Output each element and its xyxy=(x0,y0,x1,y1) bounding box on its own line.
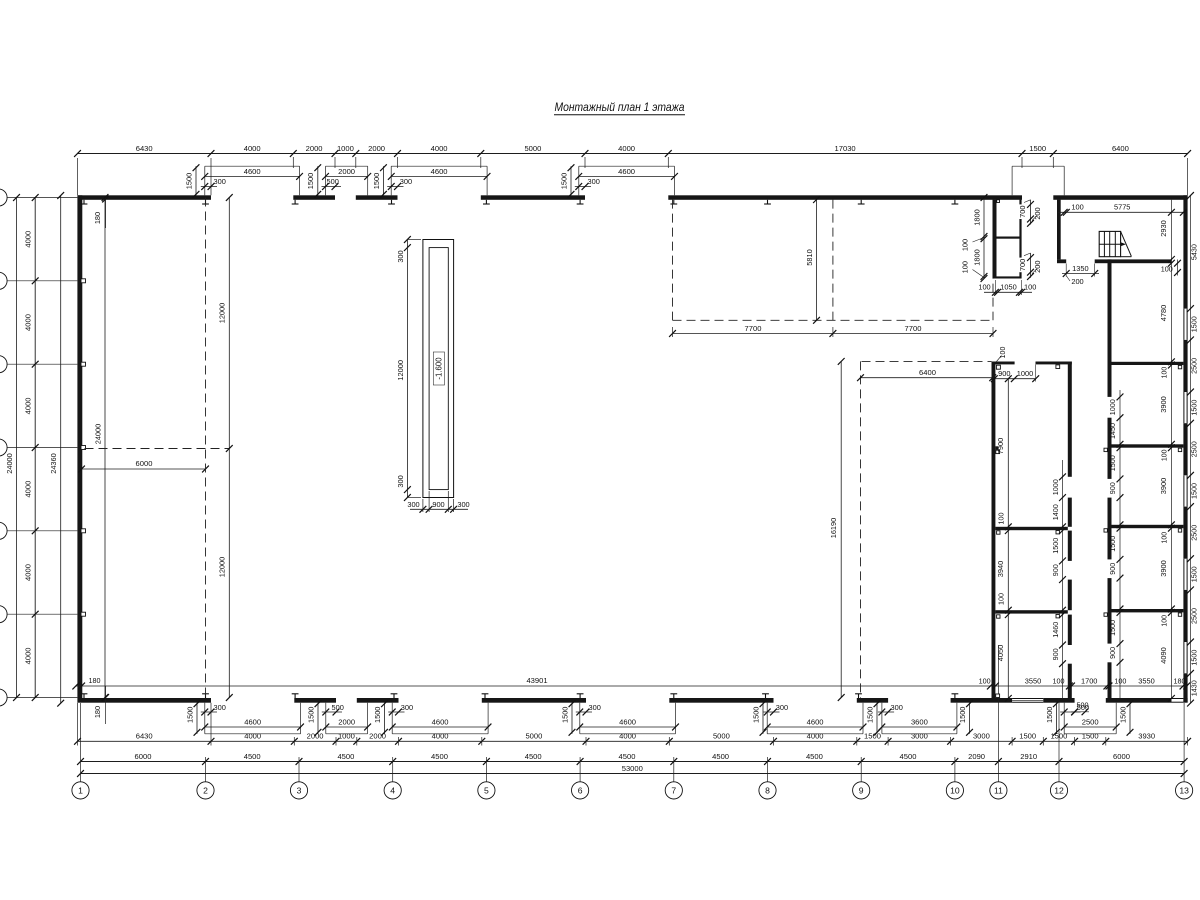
svg-text:4000: 4000 xyxy=(807,732,824,741)
svg-text:180: 180 xyxy=(89,676,101,685)
svg-text:300: 300 xyxy=(396,250,405,262)
svg-text:12000: 12000 xyxy=(218,303,227,324)
svg-text:4000: 4000 xyxy=(244,732,261,741)
svg-text:300: 300 xyxy=(891,703,903,712)
svg-text:17030: 17030 xyxy=(835,144,856,153)
svg-text:4000: 4000 xyxy=(24,481,33,498)
svg-text:1000: 1000 xyxy=(337,144,354,153)
svg-text:4500: 4500 xyxy=(244,752,261,761)
svg-text:300: 300 xyxy=(457,500,469,509)
svg-text:1500: 1500 xyxy=(373,707,382,723)
svg-text:4600: 4600 xyxy=(244,167,261,176)
svg-text:1500: 1500 xyxy=(958,707,967,723)
svg-text:1500: 1500 xyxy=(1118,707,1127,723)
svg-text:1430: 1430 xyxy=(1190,680,1199,696)
svg-text:3900: 3900 xyxy=(1159,396,1168,412)
svg-text:100: 100 xyxy=(1161,615,1168,627)
svg-text:2000: 2000 xyxy=(338,167,355,176)
svg-text:300: 300 xyxy=(407,500,419,509)
svg-text:2500: 2500 xyxy=(1082,718,1099,727)
svg-text:4000: 4000 xyxy=(431,144,448,153)
svg-text:6430: 6430 xyxy=(136,732,153,741)
svg-text:5000: 5000 xyxy=(524,144,541,153)
svg-text:4500: 4500 xyxy=(525,752,542,761)
svg-text:3600: 3600 xyxy=(911,718,928,727)
svg-text:4780: 4780 xyxy=(1159,305,1168,321)
svg-text:3940: 3940 xyxy=(996,561,1005,577)
svg-text:1500: 1500 xyxy=(560,707,569,723)
svg-text:300: 300 xyxy=(776,703,788,712)
svg-text:100: 100 xyxy=(1161,449,1168,461)
svg-text:1500: 1500 xyxy=(1108,536,1117,552)
svg-text:4600: 4600 xyxy=(431,167,448,176)
svg-text:4600: 4600 xyxy=(807,718,824,727)
svg-text:1500: 1500 xyxy=(865,707,874,723)
svg-text:4000: 4000 xyxy=(24,647,33,664)
svg-text:1500: 1500 xyxy=(1029,144,1046,153)
svg-text:4: 4 xyxy=(390,785,395,795)
svg-text:900: 900 xyxy=(1108,647,1117,659)
svg-text:500: 500 xyxy=(1077,700,1089,709)
svg-text:4090: 4090 xyxy=(1159,647,1168,663)
svg-text:3930: 3930 xyxy=(1138,732,1155,741)
svg-text:100: 100 xyxy=(979,676,991,685)
svg-text:4000: 4000 xyxy=(432,732,449,741)
svg-text:1000: 1000 xyxy=(338,732,355,741)
svg-text:8: 8 xyxy=(765,785,770,795)
svg-text:1000: 1000 xyxy=(1108,399,1117,415)
svg-text:1800: 1800 xyxy=(972,209,981,225)
svg-text:3: 3 xyxy=(297,785,302,795)
svg-text:16190: 16190 xyxy=(829,518,838,539)
svg-text:300: 300 xyxy=(396,475,405,487)
svg-text:900: 900 xyxy=(998,369,1010,378)
svg-text:1500: 1500 xyxy=(1190,650,1199,666)
svg-text:5: 5 xyxy=(484,785,489,795)
svg-text:900: 900 xyxy=(432,500,444,509)
svg-text:24360: 24360 xyxy=(49,453,58,474)
svg-text:1700: 1700 xyxy=(1081,676,1097,685)
svg-text:4000: 4000 xyxy=(618,144,635,153)
svg-text:300: 300 xyxy=(214,703,226,712)
svg-text:4050: 4050 xyxy=(996,645,1005,661)
svg-text:1500: 1500 xyxy=(1082,732,1099,741)
svg-text:900: 900 xyxy=(1051,648,1060,660)
svg-text:2930: 2930 xyxy=(1159,220,1168,236)
svg-text:2000: 2000 xyxy=(306,144,323,153)
svg-text:2000: 2000 xyxy=(369,732,386,741)
svg-text:7: 7 xyxy=(671,785,676,795)
svg-text:5775: 5775 xyxy=(1114,203,1130,212)
svg-text:7700: 7700 xyxy=(905,324,922,333)
svg-text:900: 900 xyxy=(1051,564,1060,576)
svg-text:2910: 2910 xyxy=(1020,752,1037,761)
svg-text:6400: 6400 xyxy=(919,368,936,377)
svg-text:2500: 2500 xyxy=(1190,441,1199,457)
svg-text:2500: 2500 xyxy=(1190,608,1199,624)
svg-text:4500: 4500 xyxy=(619,752,636,761)
svg-text:1500: 1500 xyxy=(1045,707,1054,723)
svg-text:1800: 1800 xyxy=(972,249,981,265)
svg-text:12000: 12000 xyxy=(396,360,405,381)
svg-text:3000: 3000 xyxy=(911,732,928,741)
svg-text:1400: 1400 xyxy=(1051,504,1060,520)
svg-text:2000: 2000 xyxy=(368,144,385,153)
svg-text:5000: 5000 xyxy=(525,732,542,741)
svg-text:100: 100 xyxy=(1053,676,1065,685)
svg-text:300: 300 xyxy=(400,177,412,186)
svg-text:1: 1 xyxy=(78,785,83,795)
svg-text:-1.600: -1.600 xyxy=(435,357,444,380)
svg-text:4600: 4600 xyxy=(619,718,636,727)
svg-text:500: 500 xyxy=(327,177,339,186)
svg-text:6000: 6000 xyxy=(136,459,153,468)
svg-text:7700: 7700 xyxy=(745,324,762,333)
svg-text:4500: 4500 xyxy=(431,752,448,761)
svg-text:1350: 1350 xyxy=(1072,264,1088,273)
svg-text:100: 100 xyxy=(1161,532,1168,544)
svg-text:1460: 1460 xyxy=(1051,622,1060,638)
svg-text:100: 100 xyxy=(1071,203,1083,212)
svg-text:24000: 24000 xyxy=(93,424,102,445)
svg-text:2000: 2000 xyxy=(307,732,324,741)
svg-text:100: 100 xyxy=(978,283,990,292)
svg-text:9: 9 xyxy=(859,785,864,795)
svg-text:300: 300 xyxy=(214,177,226,186)
svg-text:1500: 1500 xyxy=(864,732,881,741)
svg-text:4000: 4000 xyxy=(24,231,33,248)
svg-text:100: 100 xyxy=(1114,676,1126,685)
svg-text:6430: 6430 xyxy=(136,144,153,153)
svg-text:2: 2 xyxy=(203,785,208,795)
svg-text:1500: 1500 xyxy=(184,173,193,189)
svg-text:4600: 4600 xyxy=(618,167,635,176)
svg-text:3550: 3550 xyxy=(1025,676,1041,685)
svg-text:11: 11 xyxy=(994,785,1003,795)
svg-text:1500: 1500 xyxy=(372,173,381,189)
svg-text:10: 10 xyxy=(950,785,960,795)
svg-text:4500: 4500 xyxy=(806,752,823,761)
svg-text:13: 13 xyxy=(1179,785,1189,795)
svg-text:1500: 1500 xyxy=(1190,483,1199,499)
svg-text:1450: 1450 xyxy=(1108,423,1117,439)
svg-text:4500: 4500 xyxy=(337,752,354,761)
svg-text:1500: 1500 xyxy=(185,707,194,723)
svg-text:6400: 6400 xyxy=(1112,144,1129,153)
svg-text:4000: 4000 xyxy=(24,397,33,414)
svg-text:1500: 1500 xyxy=(1051,538,1060,554)
svg-text:1500: 1500 xyxy=(1190,566,1199,582)
svg-text:4000: 4000 xyxy=(244,144,261,153)
svg-text:2500: 2500 xyxy=(1190,525,1199,541)
svg-text:43901: 43901 xyxy=(526,676,547,685)
svg-text:6000: 6000 xyxy=(1113,752,1130,761)
svg-text:5000: 5000 xyxy=(713,732,730,741)
svg-text:900: 900 xyxy=(1108,563,1117,575)
svg-text:4600: 4600 xyxy=(244,718,261,727)
svg-text:1500: 1500 xyxy=(751,707,760,723)
svg-text:300: 300 xyxy=(588,177,600,186)
svg-text:900: 900 xyxy=(1108,482,1117,494)
svg-text:180: 180 xyxy=(1174,676,1186,685)
svg-text:2000: 2000 xyxy=(338,718,355,727)
svg-text:1500: 1500 xyxy=(306,173,315,189)
svg-text:1500: 1500 xyxy=(1108,455,1117,471)
svg-text:53000: 53000 xyxy=(622,764,643,773)
svg-text:3550: 3550 xyxy=(1138,676,1154,685)
svg-text:5810: 5810 xyxy=(805,249,814,265)
svg-text:7900: 7900 xyxy=(996,438,1005,454)
svg-text:12000: 12000 xyxy=(218,557,227,578)
svg-text:1500: 1500 xyxy=(1019,732,1036,741)
svg-text:100: 100 xyxy=(997,593,1006,605)
svg-text:100: 100 xyxy=(1161,367,1168,379)
svg-text:4600: 4600 xyxy=(432,718,449,727)
svg-text:1000: 1000 xyxy=(1017,369,1033,378)
svg-text:100: 100 xyxy=(1024,283,1036,292)
svg-text:180: 180 xyxy=(93,706,102,718)
svg-text:6: 6 xyxy=(578,785,583,795)
svg-text:Монтажный план 1 этажа: Монтажный план 1 этажа xyxy=(555,100,685,114)
svg-text:2090: 2090 xyxy=(968,752,985,761)
svg-text:6000: 6000 xyxy=(135,752,152,761)
svg-text:5430: 5430 xyxy=(1190,244,1199,260)
svg-text:100: 100 xyxy=(961,261,970,273)
svg-text:4500: 4500 xyxy=(900,752,917,761)
svg-text:100: 100 xyxy=(997,513,1006,525)
svg-text:4500: 4500 xyxy=(712,752,729,761)
svg-text:100: 100 xyxy=(1161,265,1173,274)
svg-text:1500: 1500 xyxy=(306,707,315,723)
svg-text:1500: 1500 xyxy=(1108,620,1117,636)
svg-text:4000: 4000 xyxy=(24,564,33,581)
svg-text:2500: 2500 xyxy=(1190,358,1199,374)
svg-text:1000: 1000 xyxy=(1051,479,1060,495)
svg-text:300: 300 xyxy=(401,703,413,712)
svg-text:700: 700 xyxy=(1018,206,1027,218)
svg-text:3900: 3900 xyxy=(1159,560,1168,576)
svg-text:24000: 24000 xyxy=(5,453,14,474)
svg-text:300: 300 xyxy=(589,703,601,712)
svg-text:1500: 1500 xyxy=(1190,316,1199,332)
svg-text:700: 700 xyxy=(1018,259,1027,271)
svg-text:200: 200 xyxy=(1071,277,1083,286)
svg-text:4000: 4000 xyxy=(24,314,33,331)
svg-text:100: 100 xyxy=(961,239,970,251)
svg-text:3000: 3000 xyxy=(973,732,990,741)
svg-text:12: 12 xyxy=(1054,785,1064,795)
svg-text:1500: 1500 xyxy=(559,173,568,189)
svg-text:4000: 4000 xyxy=(619,732,636,741)
svg-text:3900: 3900 xyxy=(1159,478,1168,494)
svg-text:1500: 1500 xyxy=(1190,400,1199,416)
svg-text:500: 500 xyxy=(332,703,344,712)
svg-text:1050: 1050 xyxy=(1000,283,1016,292)
svg-text:180: 180 xyxy=(93,212,102,224)
